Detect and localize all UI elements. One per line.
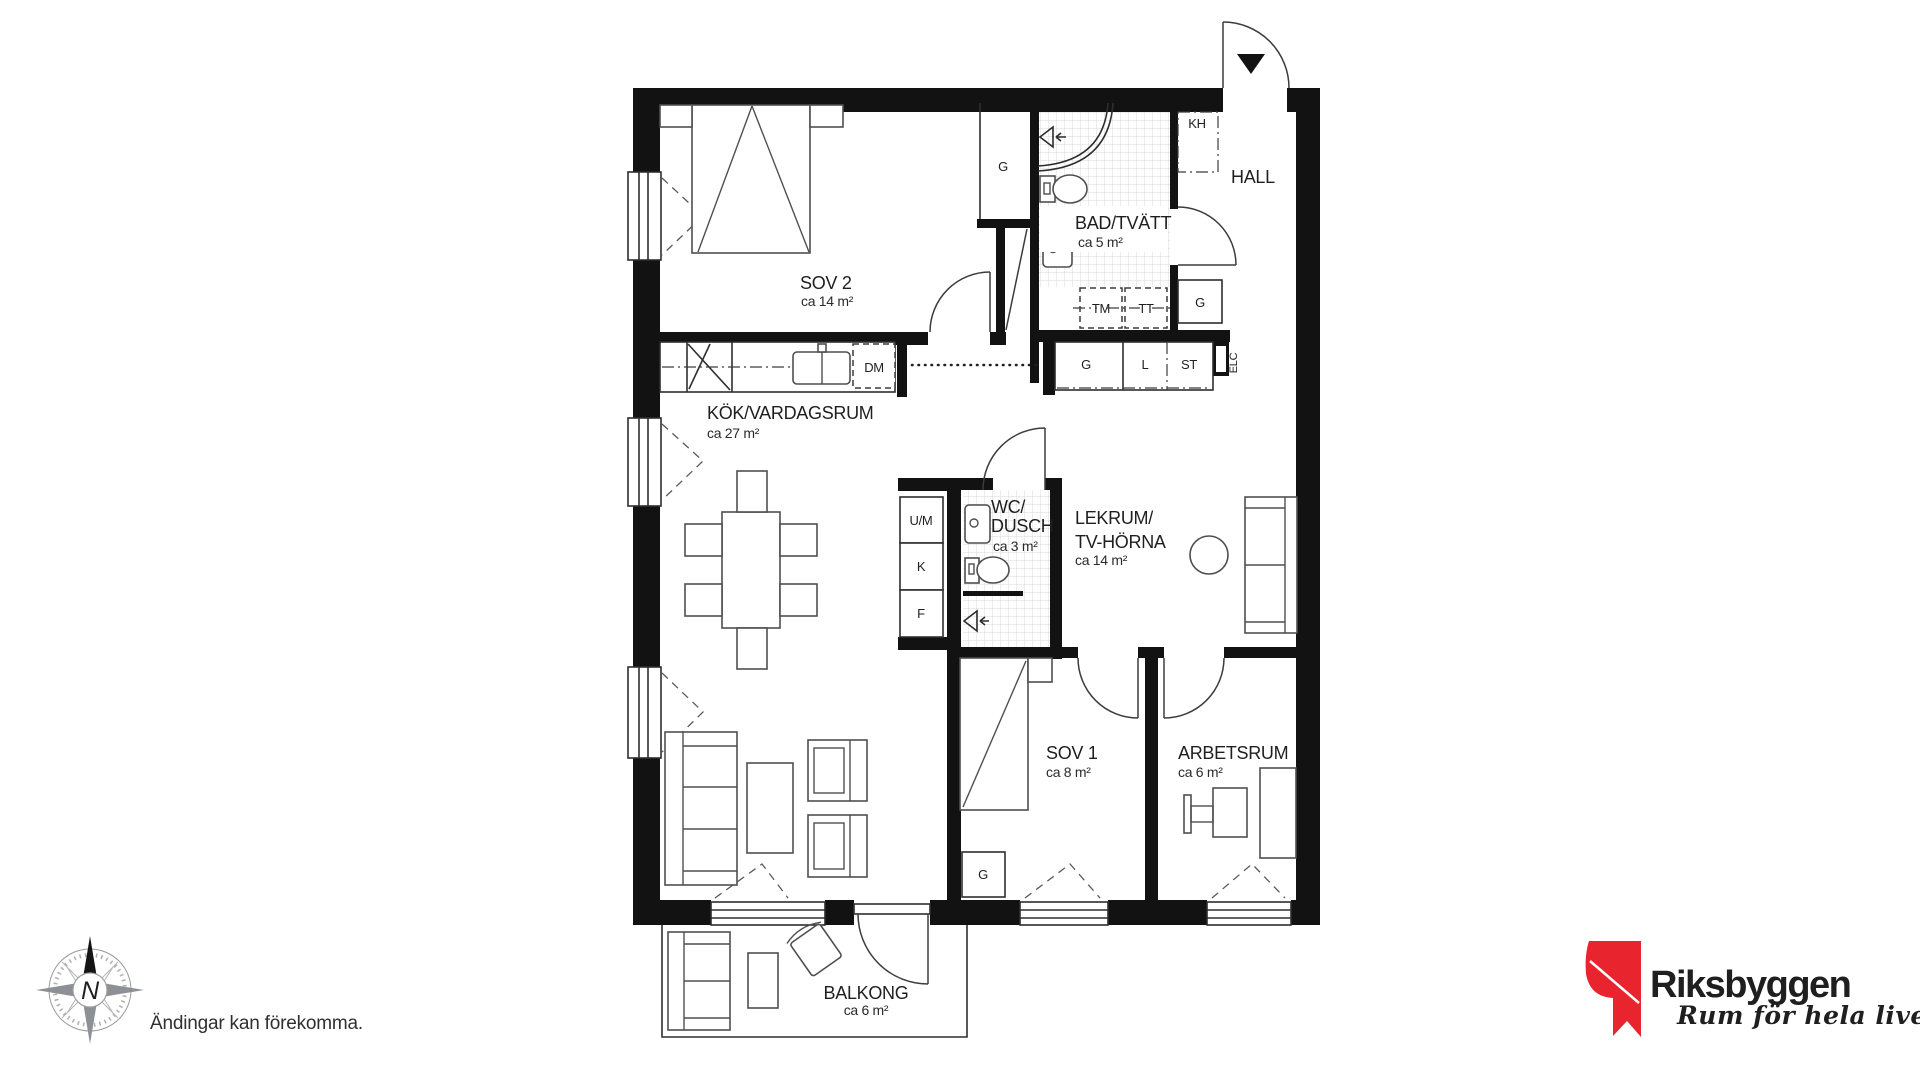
- lekrum-round-table: [1190, 536, 1228, 574]
- desk-and-chair: [1184, 788, 1247, 837]
- sov1-wardrobe: G: [962, 852, 1005, 897]
- shower-partition: [963, 591, 1023, 596]
- dishwasher: DM: [853, 344, 895, 388]
- compass-north-label: N: [81, 977, 100, 1005]
- balcony: [662, 918, 967, 1037]
- wardrobe-label: G: [1195, 295, 1205, 310]
- fridge-label: K: [917, 559, 926, 574]
- entrance-arrow-icon: [1237, 54, 1265, 74]
- sov1-area: ca 8 m²: [1046, 764, 1091, 780]
- balcony-door: [854, 904, 930, 984]
- window-left-kitchen: [628, 418, 703, 506]
- um-label: U/M: [910, 513, 933, 528]
- wc-toilet-icon: [965, 557, 1009, 583]
- sov2-label: SOV 2: [800, 273, 852, 293]
- bathroom-door: [1178, 207, 1236, 265]
- bad-tvatt-area: ca 5 m²: [1078, 234, 1123, 250]
- riksbyggen-tagline: Rum för hela livet: [1676, 1001, 1920, 1030]
- sov2-area: ca 14 m²: [801, 293, 854, 309]
- hall-wardrobe-upper: G: [1178, 280, 1222, 323]
- wc-dusch-label-line1: WC/: [991, 497, 1025, 517]
- window-bottom-sov1: [1020, 864, 1108, 925]
- balkong-label: BALKONG: [824, 983, 909, 1003]
- hall-kh-closet: KH: [1178, 112, 1218, 172]
- riksbyggen-ribbon-icon: [1586, 941, 1641, 1037]
- arbetsrum-area: ca 6 m²: [1178, 764, 1223, 780]
- floor-plan-svg: DM U/M K F G KH G G L ST: [0, 0, 1920, 1080]
- lekrum-area: ca 14 m²: [1075, 552, 1128, 568]
- st-closet-label: ST: [1181, 357, 1197, 372]
- tt-label: TT: [1138, 301, 1154, 316]
- kh-label: KH: [1188, 116, 1205, 131]
- balkong-area: ca 6 m²: [844, 1002, 889, 1018]
- lekrum-label-line2: TV-HÖRNA: [1075, 532, 1166, 552]
- arbetsrum-shelf: [1260, 768, 1296, 858]
- freezer-label: F: [917, 606, 925, 621]
- elc-label: ELC: [1228, 352, 1240, 373]
- sov2-door: [930, 272, 990, 332]
- arbetsrum-door: [1164, 658, 1224, 718]
- armchair-1: [808, 740, 867, 801]
- sov1-door: [1078, 658, 1138, 718]
- riksbyggen-logo: Riksbyggen Rum för hela livet: [1586, 941, 1920, 1037]
- balcony-chair: [785, 918, 844, 978]
- wc-sink-icon: [965, 505, 990, 543]
- sov1-bed: [960, 658, 1052, 810]
- wc-dusch-label-line2: DUSCH: [991, 516, 1054, 536]
- compass-rose-icon: N: [36, 936, 144, 1044]
- balcony-bench: [668, 932, 730, 1030]
- dm-label: DM: [864, 360, 884, 375]
- lekrum-label-line1: LEKRUM/: [1075, 508, 1153, 528]
- sov2-wardrobe: G: [980, 103, 1008, 219]
- arbetsrum-label: ARBETSRUM: [1178, 743, 1288, 763]
- kok-vardagsrum-area: ca 27 m²: [707, 425, 760, 441]
- kitchen-counter: DM: [660, 342, 895, 392]
- balcony-table: [748, 953, 778, 1008]
- hall-kitchen-door: [1006, 229, 1027, 330]
- living-sofa: [665, 732, 737, 885]
- kok-vardagsrum-label: KÖK/VARDAGSRUM: [707, 403, 874, 423]
- riksbyggen-wordmark: Riksbyggen: [1650, 964, 1850, 1006]
- coffee-table: [747, 763, 793, 853]
- kitchen-tall-units: U/M K F: [900, 497, 943, 637]
- window-bottom-arbetsrum: [1207, 864, 1291, 925]
- wardrobe-label: G: [978, 867, 988, 882]
- armchair-2: [808, 815, 867, 877]
- linen-closet-label: L: [1142, 357, 1149, 372]
- toilet-icon: [1040, 175, 1087, 203]
- disclaimer-text: Ändingar kan förekomma.: [150, 1013, 363, 1034]
- floorplan-page: DM U/M K F G KH G G L ST: [0, 0, 1920, 1080]
- wardrobe-label: G: [1081, 357, 1091, 372]
- hall-label: HALL: [1231, 167, 1275, 187]
- sov1-label: SOV 1: [1046, 743, 1098, 763]
- wardrobe-label: G: [998, 159, 1008, 174]
- entrance-door: [1223, 22, 1289, 88]
- bad-tvatt-label: BAD/TVÄTT: [1075, 213, 1172, 233]
- lekrum-sofa: [1245, 497, 1297, 633]
- wc-dusch-area: ca 3 m²: [993, 538, 1038, 554]
- hall-closet-row: G L ST: [1055, 342, 1213, 390]
- dining-table-set: [685, 471, 817, 669]
